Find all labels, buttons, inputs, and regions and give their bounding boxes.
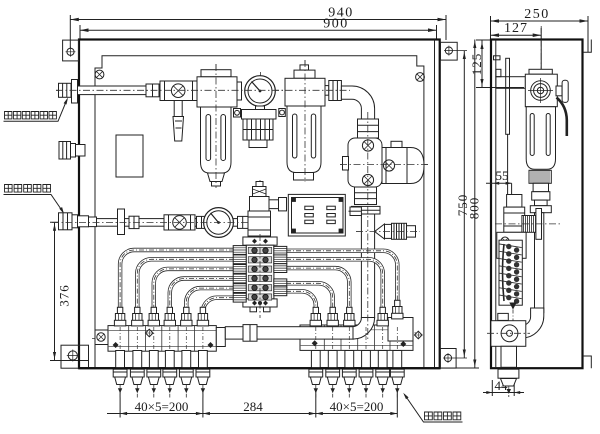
svg-text:376: 376 xyxy=(57,284,72,307)
svg-text:40×5=200: 40×5=200 xyxy=(330,399,384,414)
svg-text:250: 250 xyxy=(524,7,550,22)
svg-text:125: 125 xyxy=(469,53,484,76)
svg-text:40×5=200: 40×5=200 xyxy=(135,399,189,414)
svg-text:284: 284 xyxy=(243,399,263,414)
svg-text:800: 800 xyxy=(466,197,481,220)
svg-text:55: 55 xyxy=(496,168,509,183)
svg-text:127: 127 xyxy=(504,21,528,36)
svg-text:900: 900 xyxy=(323,17,349,32)
